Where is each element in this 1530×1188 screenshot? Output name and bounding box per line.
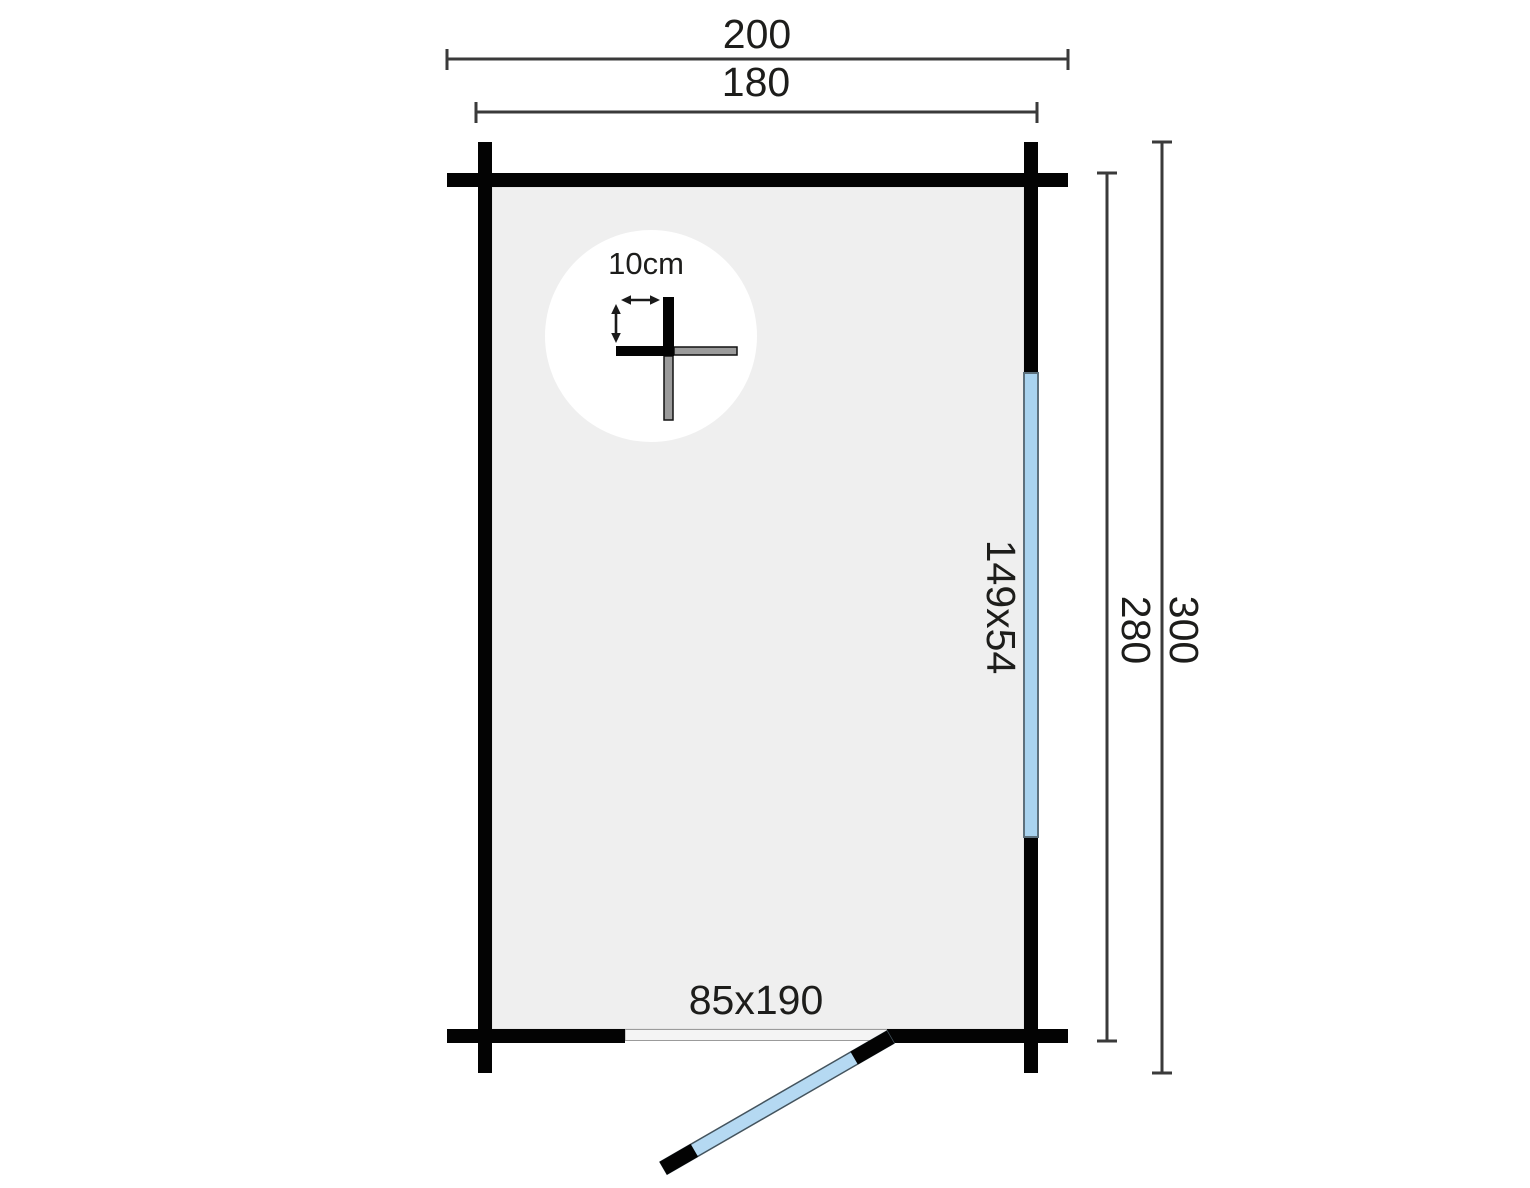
detail-log-horizontal-gray xyxy=(674,347,737,355)
wall-thickness-label: 10cm xyxy=(608,246,684,281)
outer-width-label: 200 xyxy=(723,11,791,57)
wall-height-label: 280 xyxy=(1113,596,1159,664)
wall-top xyxy=(447,173,1068,187)
floor-plan-page: 200 180 280 300 149x54 85x190 10cm xyxy=(0,0,1530,1188)
wall-right-lower-segment xyxy=(1024,837,1038,1073)
window-size-label: 149x54 xyxy=(978,540,1024,675)
wall-bottom-left-segment xyxy=(447,1029,625,1043)
detail-log-horizontal-black xyxy=(616,346,674,356)
door-leaf xyxy=(659,1031,894,1175)
wall-right-upper-segment xyxy=(1024,142,1038,373)
window xyxy=(1024,373,1038,837)
wall-width-label: 180 xyxy=(722,59,790,105)
detail-log-vertical-gray xyxy=(664,356,673,420)
outer-height-label: 300 xyxy=(1161,596,1207,664)
dim-line-wall-width xyxy=(476,102,1037,123)
door-opening xyxy=(625,1030,887,1041)
door-size-label: 85x190 xyxy=(689,977,824,1023)
door-tip-end xyxy=(659,1144,698,1175)
wall-left xyxy=(478,142,492,1073)
floor-plan-canvas: 200 180 280 300 149x54 85x190 10cm xyxy=(0,0,1530,1188)
wall-bottom-right-segment xyxy=(887,1029,1068,1043)
